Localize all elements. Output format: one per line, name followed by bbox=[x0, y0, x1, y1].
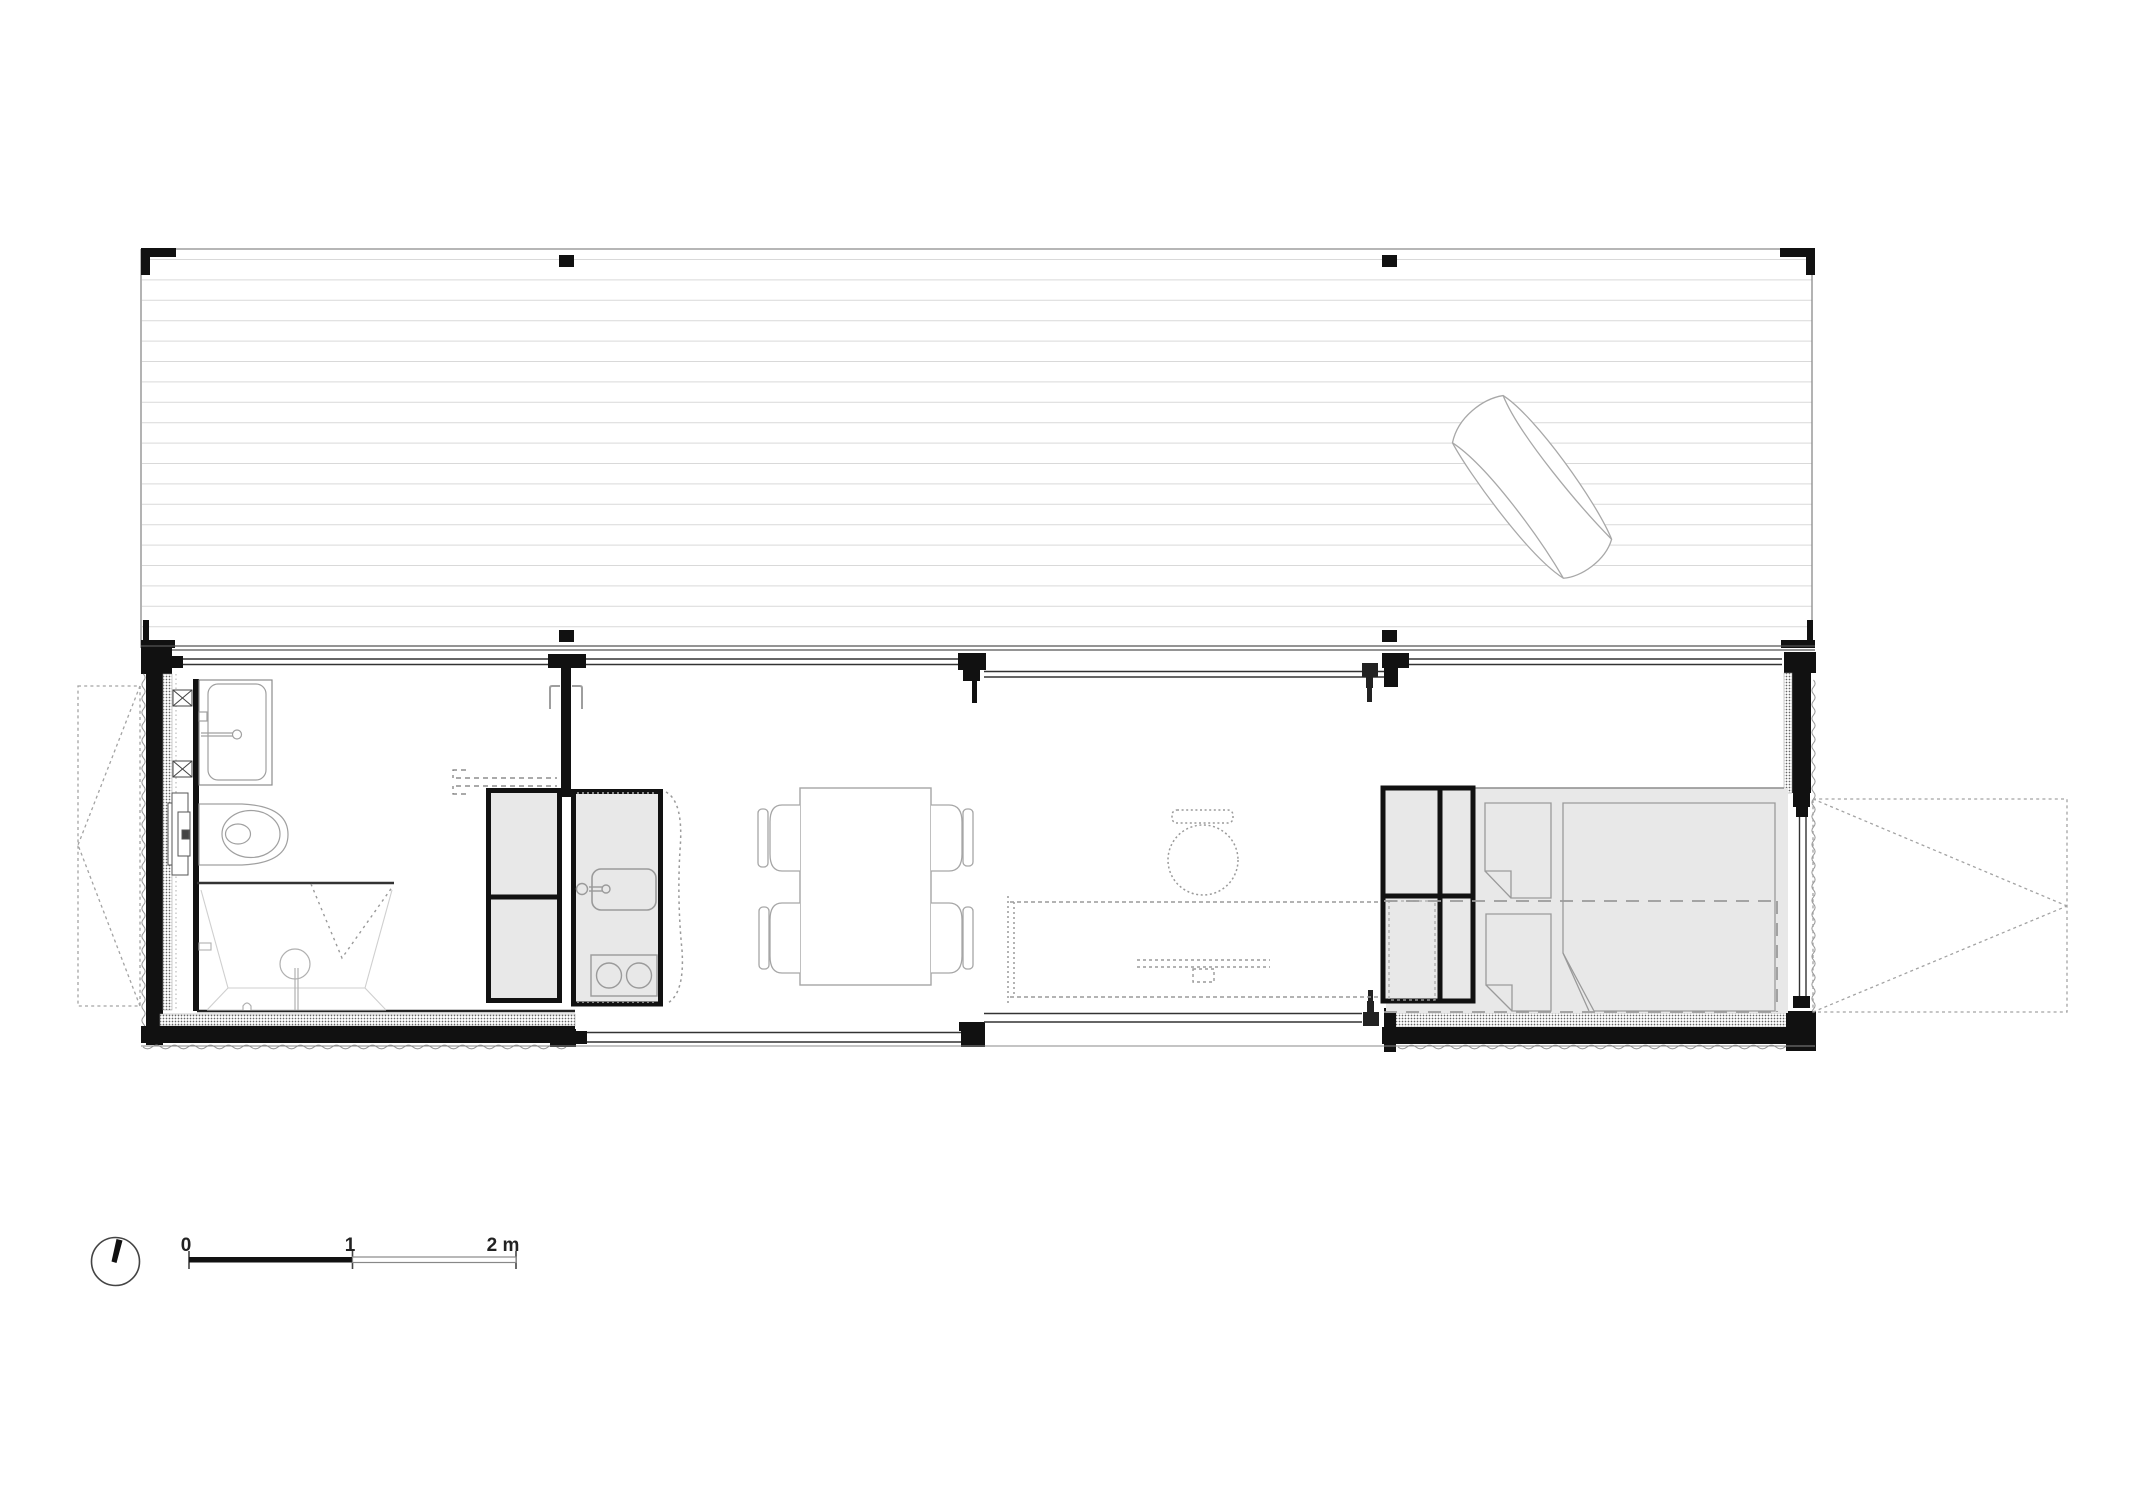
svg-text:2 m: 2 m bbox=[487, 1235, 520, 1256]
svg-text:1: 1 bbox=[345, 1235, 356, 1256]
